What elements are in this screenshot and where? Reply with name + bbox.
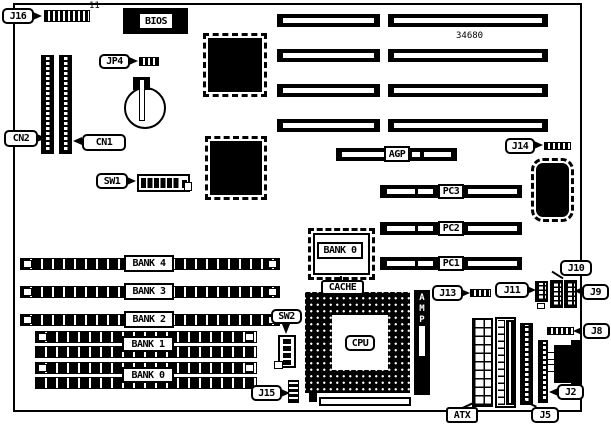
j15-label: J15 (251, 385, 282, 401)
sw2-tab (274, 361, 283, 369)
j16-pin-count: 11 (89, 1, 100, 11)
j5-label: J5 (531, 407, 559, 423)
bank0-label: BANK 0 (122, 367, 174, 383)
bios-label: BIOS (139, 13, 173, 29)
j13-connector (470, 289, 491, 297)
j11-label: J11 (495, 282, 529, 298)
bank0-clip-right (245, 364, 254, 372)
battery (124, 87, 166, 129)
cache-label: CACHE (321, 280, 364, 295)
pci1-label: PC1 (438, 256, 464, 271)
bank4-clip-right (268, 260, 277, 268)
sw2-label: SW2 (271, 309, 302, 324)
isa-slot-4-left (277, 119, 380, 132)
jp4-jumper (139, 57, 159, 66)
bank1-clip-right (245, 333, 254, 341)
cn2-arrow (37, 134, 46, 142)
atx-connector (472, 318, 493, 407)
j2-arrow (549, 388, 558, 396)
battery-slot (139, 79, 145, 121)
isa-slot-3-right (388, 84, 548, 97)
isa-slot-1-left (277, 14, 380, 27)
sw1-arrow (127, 177, 136, 185)
isa-slot-2-left (277, 49, 380, 62)
bank2-label: BANK 2 (124, 311, 174, 328)
keyboard-tab-2 (547, 364, 555, 372)
j16-label: J16 (2, 8, 34, 24)
j16-arrow (33, 12, 42, 20)
cn1-slot (59, 55, 72, 154)
chipset-chip-1 (208, 38, 262, 92)
j11-header (535, 281, 548, 302)
isa-slot-4-right (388, 119, 548, 132)
motherboard-diagram: J16 11 BIOS 34680 JP4 CN2 CN1 SW1 AGP (0, 0, 611, 428)
bank1-clip-left (38, 333, 47, 341)
j14-label: J14 (505, 138, 535, 154)
j16-connector (44, 10, 90, 22)
j13-arrow (461, 289, 470, 297)
j8-connector (547, 327, 574, 335)
bank4-clip-left (23, 260, 32, 268)
jp4-arrow (129, 57, 138, 65)
isa-slot-2-right (388, 49, 548, 62)
cn1-label: CN1 (82, 134, 126, 151)
cpu-socket-notch (309, 393, 317, 402)
bank3-clip-right (268, 288, 277, 296)
j10-label: J10 (560, 260, 592, 276)
isa-slot-3-left (277, 84, 380, 97)
cache-bank0-label: BANK 0 (317, 242, 363, 259)
j9-arrow (574, 287, 583, 295)
bank2-clip-left (23, 316, 32, 324)
bank1-label: BANK 1 (122, 336, 174, 352)
j14-arrow (534, 141, 543, 149)
sw2-arrow (282, 324, 290, 334)
j8-label: J8 (583, 323, 610, 339)
atx-label: ATX (446, 407, 478, 423)
pci2-label: PC2 (438, 221, 464, 236)
sw1-tab (184, 182, 192, 191)
j15-arrow (281, 389, 290, 397)
power-connector-2 (495, 317, 516, 408)
keyboard-connector-flange (571, 340, 582, 388)
board-number: 34680 (456, 31, 483, 41)
j11-sub-block (537, 303, 545, 309)
bank3-label: BANK 3 (124, 283, 174, 300)
j2-label: J2 (557, 384, 584, 400)
j14-connector (544, 142, 571, 150)
chipset-chip-2 (210, 141, 262, 195)
j8-arrow (573, 327, 582, 335)
pci3-label: PC3 (438, 184, 464, 199)
cpu-socket-lever (319, 397, 411, 406)
bank3-clip-left (23, 288, 32, 296)
bank4-label: BANK 4 (124, 255, 174, 272)
keyboard-tab-1 (547, 352, 555, 360)
io-chip (536, 163, 569, 217)
amp-slot (418, 325, 426, 357)
j11-arrow (527, 286, 536, 294)
j10-header (550, 280, 563, 308)
j13-label: J13 (432, 285, 463, 301)
sw1-dip-switch (137, 174, 190, 192)
amp-label: AMP (417, 293, 427, 326)
sw1-label: SW1 (96, 173, 128, 189)
cpu-label: CPU (345, 335, 375, 351)
j5-connector (520, 323, 533, 405)
jp4-label: JP4 (99, 54, 130, 69)
cn1-arrow (73, 137, 82, 145)
isa-slot-1-right (388, 14, 548, 27)
j9-label: J9 (582, 284, 609, 300)
agp-label: AGP (384, 146, 410, 162)
bank0-clip-left (38, 364, 47, 372)
cn2-label: CN2 (4, 130, 38, 147)
